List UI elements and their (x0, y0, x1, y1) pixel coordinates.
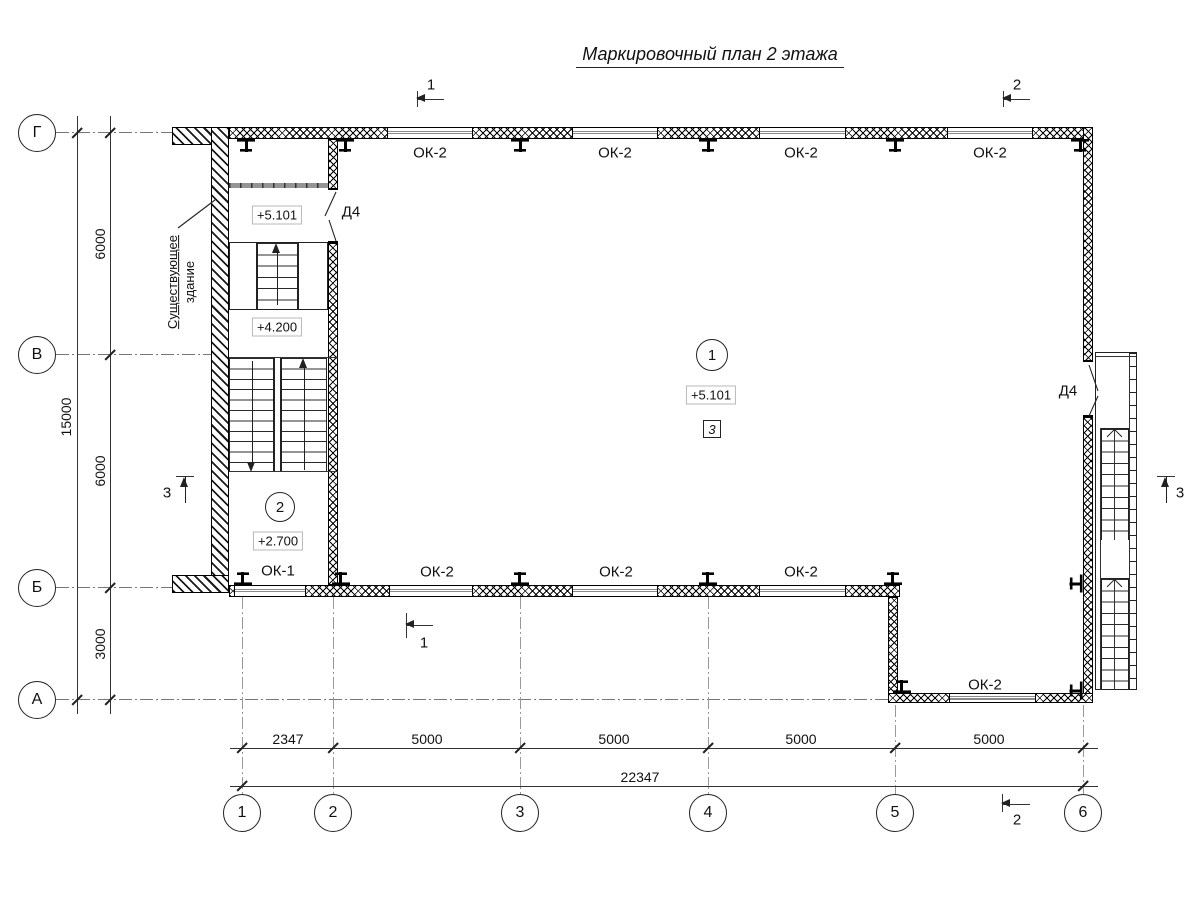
column-ibeam (511, 139, 529, 152)
note-line-1: Существующее (165, 235, 182, 329)
window-label-ok2: ОК-2 (973, 145, 1007, 162)
dim-text-3000: 3000 (92, 628, 108, 659)
elevation-mark: +5.101 (252, 206, 302, 225)
column-ibeam (332, 572, 350, 585)
axis-bubble-3: 3 (501, 794, 539, 832)
dim-text-5000: 5000 (598, 731, 629, 747)
axis-label: В (32, 346, 43, 364)
section-label-3: 3 (163, 485, 171, 502)
window-b-3 (760, 585, 845, 597)
room-number-text: 2 (276, 499, 284, 516)
grid-ext-line-3 (520, 597, 521, 795)
wall-a-segment (1035, 693, 1093, 703)
axis-label: 5 (891, 804, 900, 822)
window-top-2 (573, 127, 657, 139)
axis-label: 6 (1079, 804, 1088, 822)
stair-arrow-head (247, 462, 255, 472)
axis-line-b (56, 587, 176, 588)
dim-line-h-segments (230, 748, 1098, 749)
stair-parapet-left (229, 242, 257, 310)
wall-a-segment (888, 693, 950, 703)
window-top-1 (388, 127, 472, 139)
door-swing (325, 192, 336, 216)
column-ibeam (893, 680, 911, 693)
section-arrow (405, 620, 414, 628)
column-ibeam (884, 572, 902, 585)
column-ibeam (1071, 139, 1089, 152)
stair-center-stringer (274, 358, 281, 471)
axis-bubble-1: 1 (223, 794, 261, 832)
axis-bubble-g: Г (18, 114, 56, 152)
grid-ext-line-5 (895, 705, 896, 795)
column-ibeam (336, 139, 354, 152)
external-stair-centerline (1114, 578, 1115, 690)
window-label-ok2: ОК-2 (784, 564, 818, 581)
grid-ext-line-2 (333, 597, 334, 795)
axis-bubble-b: Б (18, 569, 56, 607)
section-label-1: 1 (420, 635, 428, 652)
wall-b-segment (845, 585, 900, 597)
axis-bubble-a: А (18, 681, 56, 719)
axis-line-v (56, 354, 212, 355)
column-ibeam (1070, 575, 1083, 593)
door-jamb (328, 188, 338, 190)
existing-wall-bottom-flange (172, 575, 229, 593)
axis-bubble-4: 4 (689, 794, 727, 832)
external-stair-flight-1 (1101, 428, 1129, 540)
dim-text-5000: 5000 (411, 731, 442, 747)
axis-label: 2 (329, 804, 338, 822)
stair-arrow-head (272, 243, 280, 253)
dim-line-h-total (230, 786, 1098, 787)
window-label-ok2: ОК-2 (598, 145, 632, 162)
wall-top-segment (845, 127, 948, 139)
window-label-ok2: ОК-2 (968, 677, 1002, 694)
axis-bubble-5: 5 (876, 794, 914, 832)
wall-top-segment (472, 127, 573, 139)
section-arrow (1161, 477, 1169, 487)
door-label-d4: Д4 (342, 204, 361, 221)
window-annex (950, 693, 1035, 703)
axis-label: 3 (516, 804, 525, 822)
column-ibeam (1070, 682, 1083, 700)
wall-top-segment (229, 127, 388, 139)
column-ibeam (886, 139, 904, 152)
note-line-2: здание (182, 235, 199, 329)
dim-text-6000-bottom: 6000 (92, 455, 108, 486)
page-title: Маркировочный план 2 этажа (460, 44, 960, 68)
wall-b-segment (657, 585, 760, 597)
elevation-mark: +4.200 (252, 318, 302, 337)
window-top-4 (948, 127, 1032, 139)
door-label-d4: Д4 (1059, 383, 1078, 400)
axis-label: Б (32, 579, 43, 597)
window-ok1 (235, 585, 305, 597)
window-label-ok2: ОК-2 (413, 145, 447, 162)
door-jamb (1083, 360, 1093, 362)
external-stair-centerline (1114, 428, 1115, 540)
grid-ext-line-1 (242, 597, 243, 795)
wall-b-segment (472, 585, 573, 597)
window-label-ok2: ОК-2 (784, 145, 818, 162)
dim-text-2347: 2347 (272, 731, 303, 747)
stair-down-arrow (252, 361, 253, 462)
wall-b-segment (305, 585, 390, 597)
wall-right-lower (1083, 417, 1093, 703)
room-number-text: 1 (708, 347, 716, 364)
column-ibeam (699, 139, 717, 152)
external-stair-flight-2 (1101, 578, 1129, 690)
leader-line (178, 200, 215, 228)
external-stair-railing-posts (1130, 353, 1136, 689)
stair-up-arrow (304, 368, 305, 470)
elevation-mark: +5.101 (686, 386, 736, 405)
floor-plan-drawing: Маркировочный план 2 этажа 6000 6000 300… (0, 0, 1200, 900)
stair-landing-edge (229, 471, 338, 472)
axis-bubble-6: 6 (1064, 794, 1102, 832)
partition (229, 183, 328, 188)
axis-label: А (32, 691, 43, 709)
axis-label: Г (33, 124, 42, 142)
dim-text-5000: 5000 (785, 731, 816, 747)
dim-line-v-outer (77, 116, 78, 714)
dim-line-v-inner (110, 116, 111, 714)
section-arrow (1002, 94, 1011, 102)
room-number-1: 1 (696, 339, 728, 371)
wall-right-upper (1083, 127, 1093, 362)
window-b-2 (573, 585, 657, 597)
window-label-ok2: ОК-2 (420, 564, 454, 581)
grid-ext-line-4 (708, 597, 709, 795)
axis-bubble-v: В (18, 336, 56, 374)
axis-label: 1 (238, 804, 247, 822)
dim-text-6000-top: 6000 (92, 228, 108, 259)
column-ibeam (699, 572, 717, 585)
section-label-2: 2 (1013, 77, 1021, 94)
floor-type-text: 3 (708, 422, 715, 437)
dim-text-22347: 22347 (621, 769, 660, 785)
room-number-2: 2 (265, 492, 295, 522)
stair-parapet-right (298, 242, 328, 310)
section-arrow (1001, 799, 1010, 807)
dim-text-5000: 5000 (973, 731, 1004, 747)
window-label-ok2: ОК-2 (599, 564, 633, 581)
window-b-1 (390, 585, 472, 597)
dim-text-15000: 15000 (58, 398, 74, 437)
door-jamb (328, 241, 338, 243)
column-ibeam (234, 572, 252, 585)
elevation-mark: +2.700 (253, 532, 303, 551)
existing-building-note: Существующее здание (165, 235, 199, 329)
page-title-text: Маркировочный план 2 этажа (576, 44, 843, 68)
door-swing (329, 220, 336, 241)
section-arrow (416, 94, 425, 102)
window-top-3 (760, 127, 845, 139)
axis-label: 4 (704, 804, 713, 822)
stair-arrow-head (299, 358, 307, 368)
stair-direction-arrow (277, 252, 278, 305)
column-ibeam (237, 139, 255, 152)
section-label-1: 1 (427, 77, 435, 94)
column-ibeam (511, 572, 529, 585)
existing-wall-vertical (211, 127, 229, 593)
grid-ext-line-6 (1083, 705, 1084, 795)
stairwell-wall-lower (328, 243, 338, 585)
section-label-3: 3 (1176, 485, 1184, 502)
wall-top-segment (657, 127, 760, 139)
door-jamb (1083, 415, 1093, 417)
section-label-2: 2 (1013, 812, 1021, 829)
section-arrow (180, 477, 188, 487)
axis-bubble-2: 2 (314, 794, 352, 832)
axis-line-a (56, 699, 892, 700)
floor-type-mark: 3 (703, 420, 721, 438)
window-label-ok1: ОК-1 (261, 563, 295, 580)
